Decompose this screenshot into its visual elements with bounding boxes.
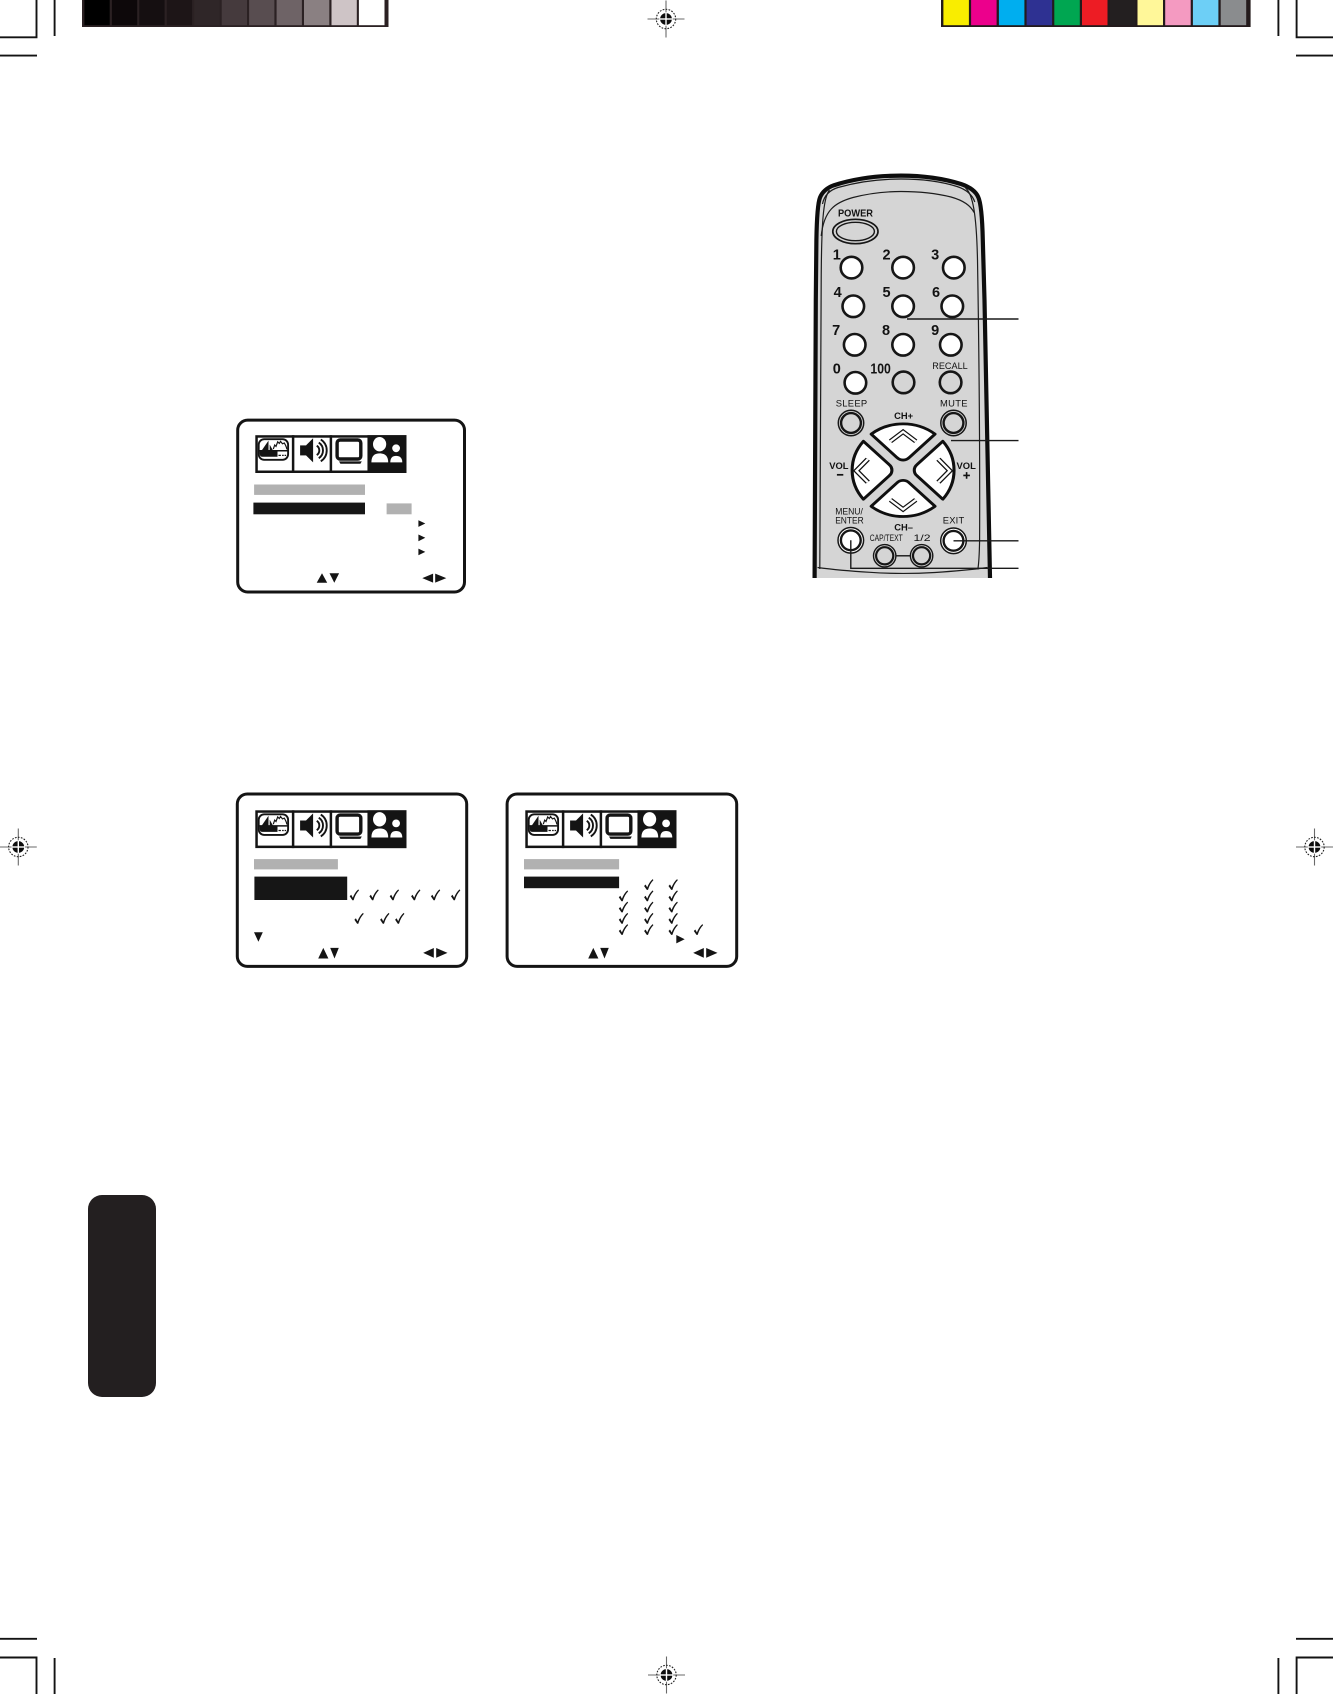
svg-text:8: 8: [882, 323, 890, 339]
svg-text:9: 9: [931, 323, 939, 339]
svg-text:EXIT: EXIT: [943, 515, 965, 526]
svg-text:5: 5: [883, 285, 891, 301]
svg-text:SLEEP: SLEEP: [836, 398, 868, 409]
svg-text:3: 3: [931, 247, 939, 263]
svg-text:RECALL: RECALL: [932, 361, 968, 371]
svg-text:6: 6: [932, 285, 940, 301]
svg-text:100: 100: [870, 361, 890, 377]
svg-text:VOL: VOL: [829, 460, 849, 471]
svg-text:1: 1: [833, 247, 841, 263]
svg-text:CH–: CH–: [894, 522, 913, 533]
svg-text:0: 0: [833, 361, 841, 377]
svg-text:2: 2: [883, 247, 891, 263]
svg-text:CH+: CH+: [894, 410, 914, 421]
svg-text:1/2: 1/2: [914, 533, 931, 544]
svg-text:7: 7: [832, 323, 840, 339]
svg-text:ENTER: ENTER: [835, 515, 864, 526]
svg-text:4: 4: [834, 285, 842, 301]
svg-text:MUTE: MUTE: [940, 398, 968, 409]
svg-text:CAP/TEXT: CAP/TEXT: [870, 533, 903, 543]
svg-text:VOL: VOL: [957, 460, 977, 471]
svg-text:POWER: POWER: [838, 208, 873, 220]
